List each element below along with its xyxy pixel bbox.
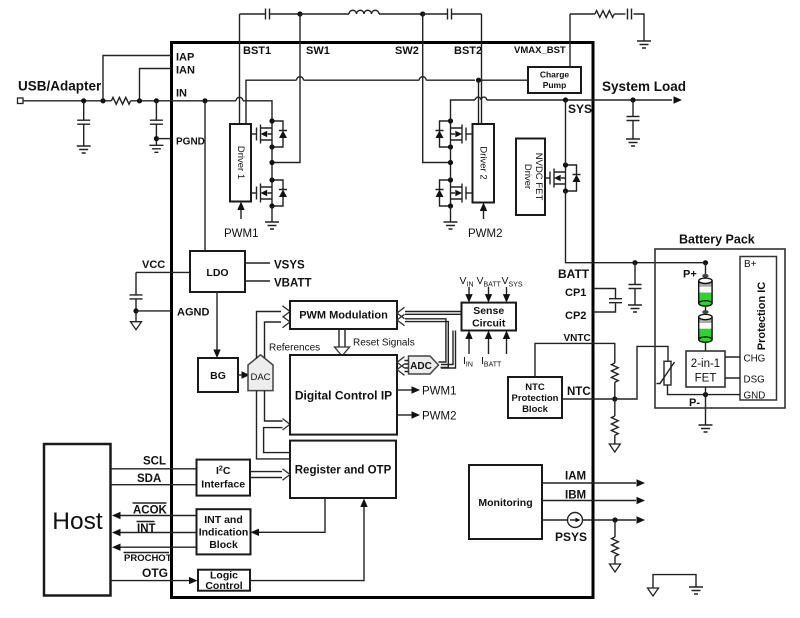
- svg-text:BATT: BATT: [558, 267, 590, 281]
- svg-text:INT: INT: [137, 523, 156, 535]
- svg-text:IAN: IAN: [176, 65, 195, 77]
- svg-text:INT and: INT and: [204, 514, 243, 526]
- svg-text:Interface: Interface: [201, 479, 245, 491]
- svg-text:IBM: IBM: [565, 490, 586, 502]
- svg-text:ACOK: ACOK: [133, 505, 168, 517]
- svg-text:Reset Signals: Reset Signals: [353, 338, 415, 349]
- svg-text:P-: P-: [689, 397, 700, 409]
- svg-text:VSYS: VSYS: [274, 260, 305, 272]
- svg-text:IAM: IAM: [565, 471, 586, 483]
- svg-text:PROCHOT: PROCHOT: [124, 553, 172, 564]
- svg-text:Block: Block: [522, 404, 549, 415]
- svg-text:GND: GND: [744, 391, 766, 402]
- svg-text:CP2: CP2: [565, 310, 586, 322]
- svg-text:SDA: SDA: [137, 473, 161, 485]
- svg-text:Host: Host: [52, 508, 103, 535]
- svg-text:AGND: AGND: [177, 307, 209, 319]
- svg-text:BG: BG: [210, 370, 226, 382]
- svg-text:P+: P+: [683, 269, 697, 281]
- svg-text:USB/Adapter: USB/Adapter: [18, 79, 102, 94]
- svg-text:NTC: NTC: [567, 386, 591, 398]
- svg-text:SW1: SW1: [306, 45, 330, 57]
- svg-text:OTG: OTG: [142, 566, 168, 580]
- svg-text:Protection IC: Protection IC: [756, 282, 768, 351]
- svg-text:Protection: Protection: [512, 393, 559, 404]
- svg-text:CP1: CP1: [565, 287, 586, 299]
- svg-text:PWM1: PWM1: [422, 386, 457, 398]
- svg-text:I2C: I2C: [216, 465, 231, 477]
- svg-text:Circuit: Circuit: [472, 318, 506, 330]
- svg-text:SW2: SW2: [395, 45, 419, 57]
- svg-text:Pump: Pump: [543, 80, 567, 90]
- svg-text:IN: IN: [176, 88, 187, 100]
- svg-text:CHG: CHG: [744, 354, 766, 365]
- svg-text:Block: Block: [209, 539, 238, 551]
- svg-text:SCL: SCL: [143, 456, 166, 468]
- svg-text:Monitoring: Monitoring: [478, 497, 532, 509]
- svg-text:VCC: VCC: [142, 259, 165, 271]
- svg-text:Battery Pack: Battery Pack: [679, 233, 755, 247]
- svg-text:Charge: Charge: [540, 70, 570, 80]
- svg-text:Driver 1: Driver 1: [235, 146, 246, 179]
- svg-text:PSYS: PSYS: [555, 530, 587, 544]
- svg-text:Indication: Indication: [199, 527, 249, 539]
- svg-text:Sense: Sense: [473, 305, 504, 317]
- svg-text:References: References: [269, 343, 320, 354]
- svg-text:Digital Control IP: Digital Control IP: [295, 389, 392, 403]
- svg-text:B+: B+: [744, 259, 757, 270]
- svg-text:2-in-1: 2-in-1: [691, 358, 720, 370]
- svg-text:LDO: LDO: [206, 267, 228, 279]
- svg-text:VBATT: VBATT: [274, 278, 311, 290]
- svg-text:DAC: DAC: [250, 372, 270, 383]
- svg-text:SYS: SYS: [568, 102, 592, 116]
- svg-text:ADC: ADC: [410, 361, 432, 372]
- svg-text:NTC: NTC: [525, 382, 545, 393]
- svg-text:PWM1: PWM1: [224, 228, 259, 240]
- svg-text:VMAX_BST: VMAX_BST: [514, 45, 566, 56]
- svg-text:PWM Modulation: PWM Modulation: [299, 310, 388, 322]
- svg-text:BST1: BST1: [243, 45, 271, 57]
- svg-text:PGND: PGND: [176, 137, 205, 148]
- svg-text:VNTC: VNTC: [564, 333, 591, 344]
- svg-text:System Load: System Load: [602, 79, 686, 94]
- svg-text:IAP: IAP: [176, 52, 194, 64]
- svg-text:FET: FET: [695, 373, 717, 385]
- svg-text:DSG: DSG: [744, 375, 765, 386]
- svg-text:Control: Control: [205, 580, 242, 592]
- svg-text:BST2: BST2: [454, 45, 482, 57]
- svg-text:Register and OTP: Register and OTP: [295, 465, 392, 477]
- svg-text:PWM2: PWM2: [422, 411, 457, 423]
- svg-text:PWM2: PWM2: [468, 228, 503, 240]
- svg-text:Driver 2: Driver 2: [478, 146, 489, 179]
